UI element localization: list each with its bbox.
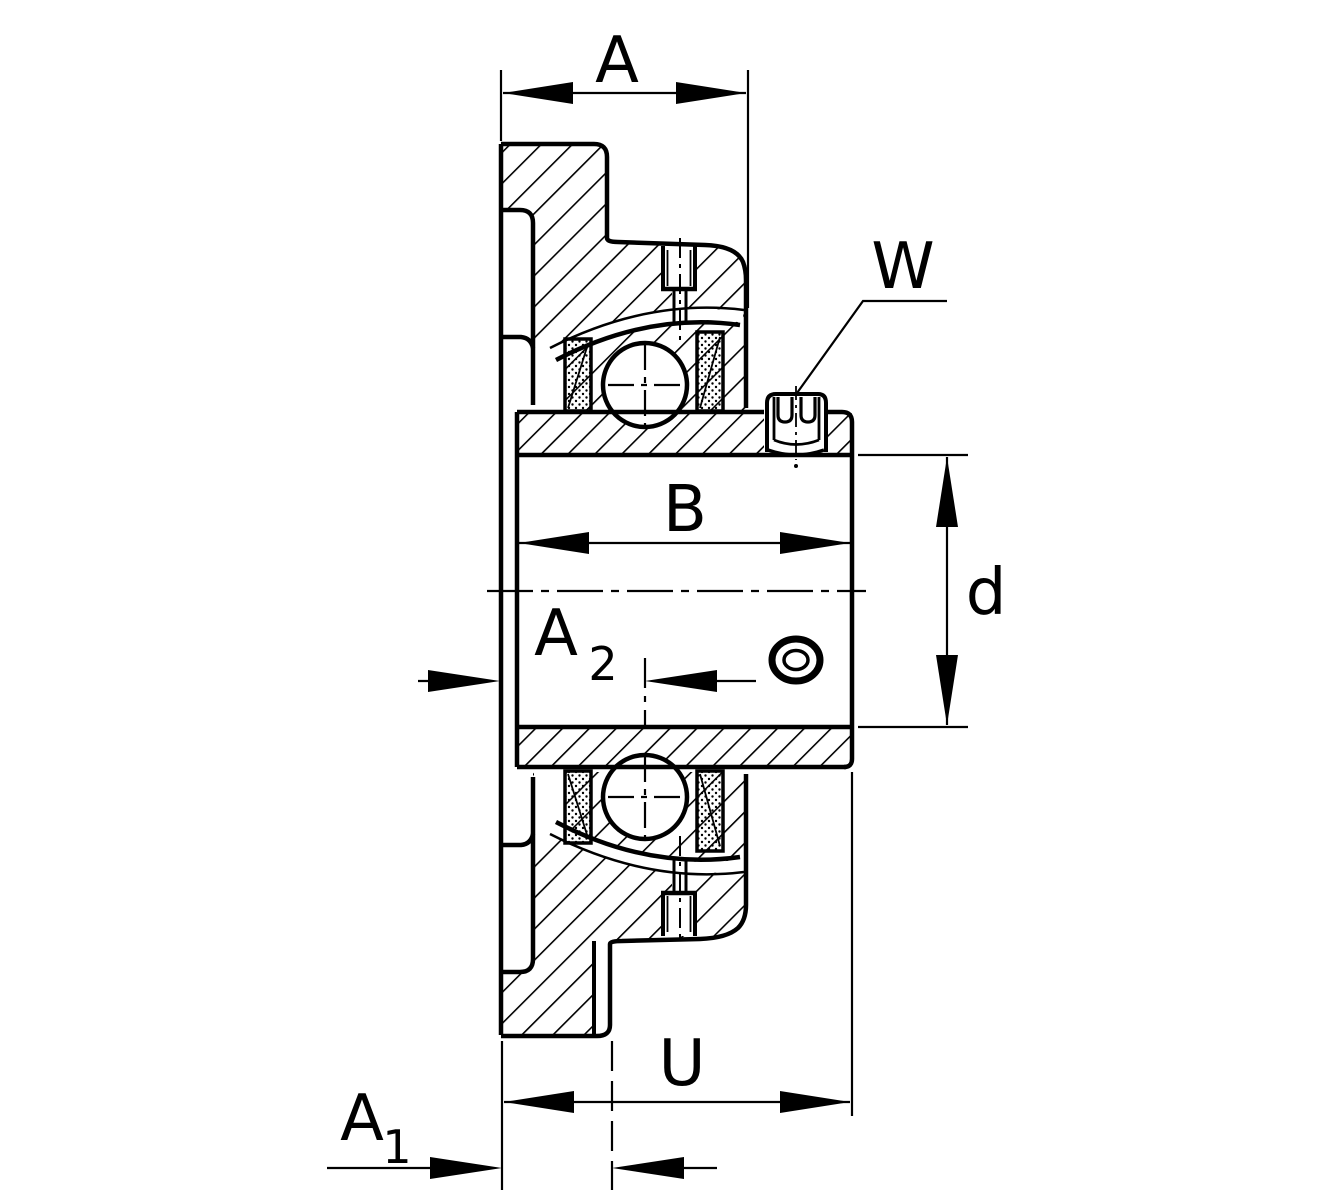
oil-hole <box>772 639 820 681</box>
dimension-labels: A W B d A 2 U A 1 <box>340 24 1006 1174</box>
w-leader-line <box>797 301 947 393</box>
inner-ring-bottom-band <box>517 728 852 766</box>
dim-label-a1-sub: 1 <box>382 1120 411 1174</box>
dim-label-a2-sub: 2 <box>588 637 617 691</box>
dim-label-a1-base: A <box>340 1082 384 1156</box>
dim-label-a2-base: A <box>534 597 578 671</box>
engineering-drawing-page: A W B d A 2 U A 1 <box>0 0 1330 1200</box>
bearing-unit-drawing: A W B d A 2 U A 1 <box>0 0 1330 1200</box>
inner-ring-outline <box>517 412 852 767</box>
dim-label-a: A <box>595 24 639 98</box>
dim-label-d: d <box>966 556 1007 630</box>
dim-label-u: U <box>659 1027 706 1101</box>
dim-label-w: W <box>871 230 934 304</box>
dim-label-b: B <box>663 473 707 547</box>
